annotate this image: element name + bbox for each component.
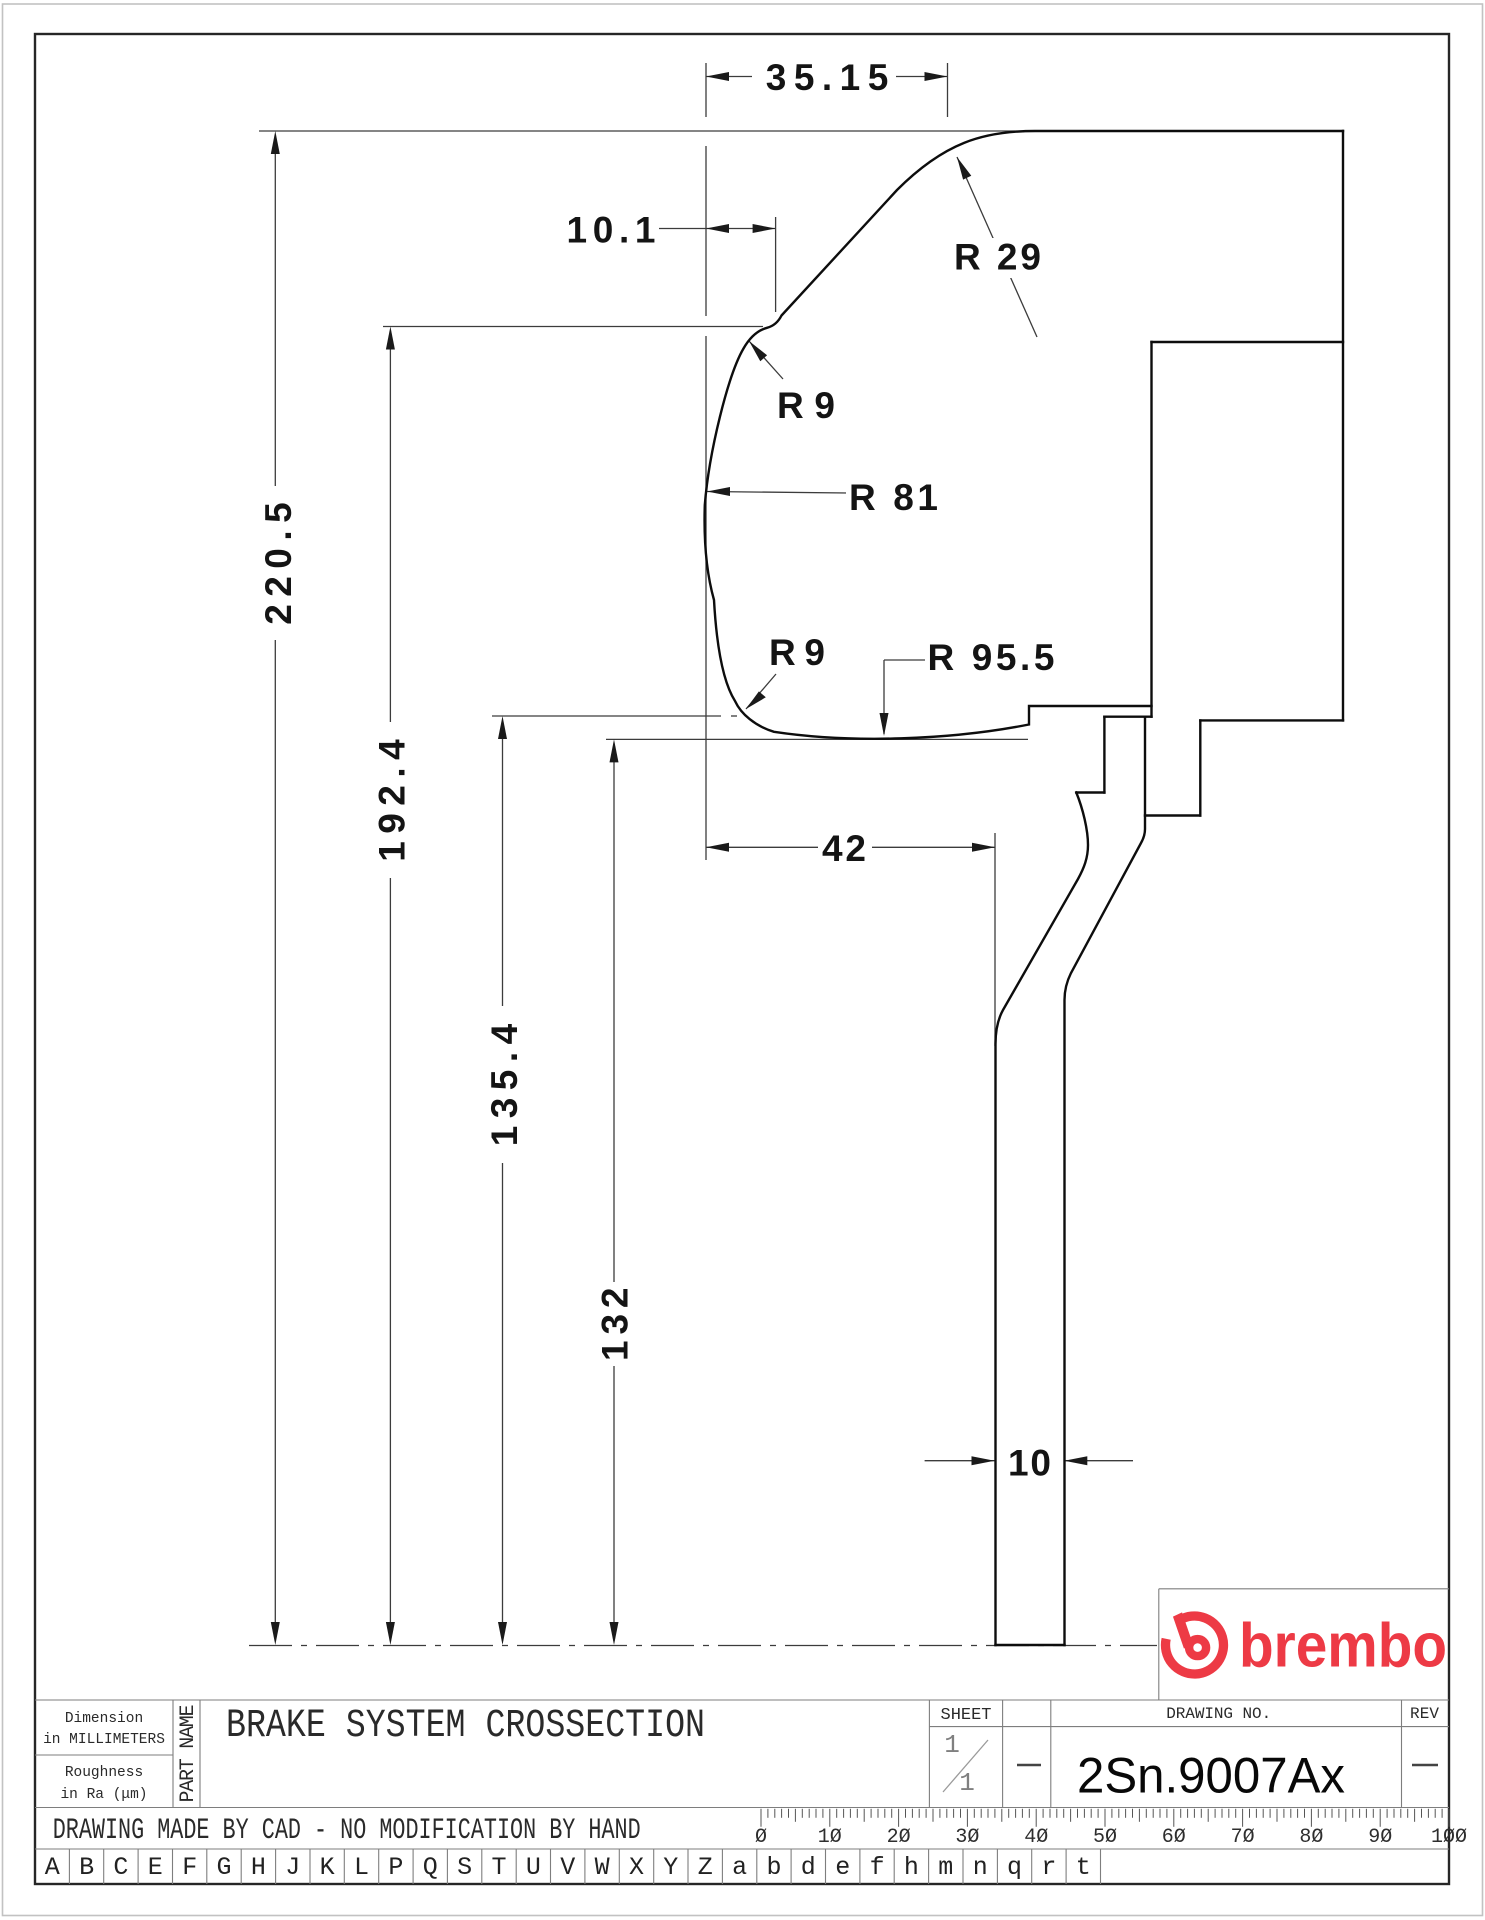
svg-text:R 9: R 9 [777,385,835,426]
svg-text:H: H [251,1853,266,1882]
svg-text:5Ø: 5Ø [1093,1826,1117,1849]
svg-text:6Ø: 6Ø [1162,1826,1186,1849]
svg-text:192.4: 192.4 [372,739,413,862]
svg-text:P: P [388,1853,403,1882]
svg-text:1ØØ: 1ØØ [1431,1826,1467,1849]
svg-text:4Ø: 4Ø [1024,1826,1048,1849]
svg-text:2Ø: 2Ø [887,1826,911,1849]
svg-text:W: W [595,1853,610,1882]
svg-text:brembo: brembo [1239,1612,1447,1681]
svg-text:T: T [491,1853,506,1882]
svg-text:K: K [320,1853,335,1882]
svg-text:9Ø: 9Ø [1368,1826,1392,1849]
svg-text:in MILLIMETERS: in MILLIMETERS [43,1732,165,1748]
svg-text:SHEET: SHEET [941,1706,992,1725]
svg-text:R 95.5: R 95.5 [928,637,1055,678]
svg-text:1Ø: 1Ø [818,1826,842,1849]
svg-text:X: X [629,1853,644,1882]
svg-text:a: a [732,1853,747,1882]
svg-text:1: 1 [959,1768,975,1798]
svg-text:A: A [45,1853,60,1882]
svg-text:V: V [560,1853,575,1882]
svg-text:DRAWING MADE BY CAD - NO MODIF: DRAWING MADE BY CAD - NO MODIFICATION BY… [53,1814,641,1848]
svg-text:b: b [766,1853,781,1882]
svg-text:135.4: 135.4 [484,1023,525,1146]
svg-text:n: n [973,1853,988,1882]
svg-text:10: 10 [1008,1442,1051,1483]
svg-text:U: U [526,1853,541,1882]
svg-text:q: q [1007,1853,1022,1882]
svg-text:1: 1 [944,1730,960,1760]
svg-text:m: m [938,1853,953,1882]
svg-text:in Ra (μm): in Ra (μm) [60,1787,147,1803]
svg-text:BRAKE SYSTEM CROSSECTION: BRAKE SYSTEM CROSSECTION [226,1704,705,1749]
svg-text:E: E [148,1853,163,1882]
svg-text:35.15: 35.15 [766,57,889,98]
svg-text:S: S [457,1853,472,1882]
svg-text:J: J [285,1853,300,1882]
svg-text:f: f [870,1853,885,1882]
svg-text:R 81: R 81 [849,477,938,518]
svg-text:7Ø: 7Ø [1231,1826,1255,1849]
svg-text:R 9: R 9 [769,632,825,673]
svg-text:132: 132 [595,1288,636,1362]
svg-text:B: B [79,1853,94,1882]
svg-text:Y: Y [663,1853,678,1882]
svg-text:Dimension: Dimension [65,1711,143,1727]
svg-text:PART NAME: PART NAME [177,1705,200,1803]
svg-text:G: G [216,1853,231,1882]
svg-text:Q: Q [423,1853,438,1882]
svg-text:F: F [182,1853,197,1882]
svg-text:R 29: R 29 [954,237,1041,278]
svg-text:DRAWING NO.: DRAWING NO. [1166,1705,1271,1723]
svg-text:t: t [1076,1853,1091,1882]
svg-text:C: C [113,1853,128,1882]
svg-text:2Sn.9007Ax: 2Sn.9007Ax [1077,1748,1345,1804]
svg-text:220.5: 220.5 [258,502,299,625]
svg-text:r: r [1041,1853,1056,1882]
svg-text:h: h [904,1853,919,1882]
svg-text:3Ø: 3Ø [955,1826,979,1849]
svg-text:8Ø: 8Ø [1299,1826,1323,1849]
svg-text:L: L [354,1853,369,1882]
svg-text:Ø: Ø [755,1826,767,1849]
svg-text:Roughness: Roughness [65,1765,143,1781]
svg-text:REV: REV [1410,1705,1439,1723]
svg-text:e: e [835,1853,850,1882]
svg-text:d: d [801,1853,816,1882]
svg-text:Z: Z [698,1853,713,1882]
svg-text:10.1: 10.1 [567,209,656,250]
